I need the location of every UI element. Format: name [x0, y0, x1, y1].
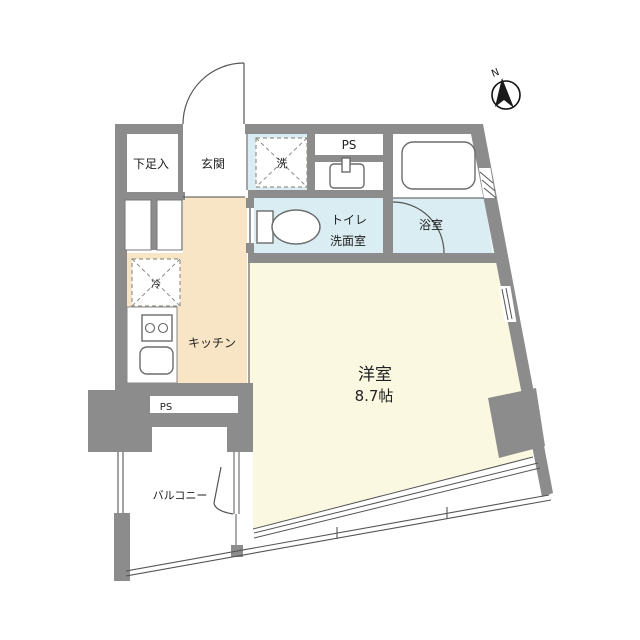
balcony-door-swing [214, 467, 233, 514]
label-pipe-space-bottom: PS [160, 402, 172, 413]
wall-toilet-door-stub-top [246, 198, 254, 208]
label-balcony: バルコニー [153, 489, 208, 502]
compass: N [490, 67, 520, 109]
entrance-door-opening [183, 124, 245, 134]
label-toilet-line1: トイレ [331, 213, 367, 227]
entrance-door-arc [183, 63, 244, 124]
wall-left [115, 124, 127, 395]
wall-closet-divider [151, 200, 157, 250]
label-kitchen: キッチン [188, 336, 236, 350]
closet-cell-right [157, 200, 182, 250]
railing-bottom-inner [126, 500, 551, 576]
floor-plan: N 下足入 玄関 洗 PS トイレ 洗面室 浴室 冷 キッチン 洋室 8.7帖 … [0, 0, 640, 640]
wall-below-shoe-storage [125, 192, 185, 200]
label-western-room-size: 8.7帖 [355, 387, 394, 405]
compass-north-label: N [490, 67, 501, 80]
bathtub [402, 142, 475, 189]
stove-burner-left [146, 324, 155, 333]
label-toilet-line2: 洗面室 [330, 233, 366, 248]
label-refrigerator: 冷 [151, 278, 161, 291]
label-washer: 洗 [277, 157, 288, 170]
label-entrance: 玄関 [201, 156, 225, 171]
wall-shoe-entrance-divider [178, 134, 183, 192]
wall-main-room-top [248, 253, 505, 263]
closet-cell-left [125, 200, 151, 250]
wash-basin-faucet [342, 158, 350, 172]
wall-below-washer-sink [248, 190, 383, 198]
label-pipe-space-top: PS [342, 138, 357, 152]
floor-plan-svg: N 下足入 玄関 洗 PS トイレ 洗面室 浴室 冷 キッチン 洋室 8.7帖 … [0, 0, 640, 640]
wall-top-right [245, 124, 483, 134]
kitchen-sink [140, 347, 173, 374]
stove-burner-right [159, 324, 168, 333]
wall-toilet-door-stub-bottom [246, 243, 254, 253]
label-bathroom: 浴室 [419, 217, 443, 232]
toilet-tank [257, 211, 273, 243]
wall-washroom-bath-divider [383, 124, 393, 263]
label-shoe-storage: 下足入 [133, 157, 169, 171]
toilet-bowl [272, 210, 320, 244]
wall-column-left [88, 390, 152, 452]
label-western-room: 洋室 [358, 365, 392, 385]
